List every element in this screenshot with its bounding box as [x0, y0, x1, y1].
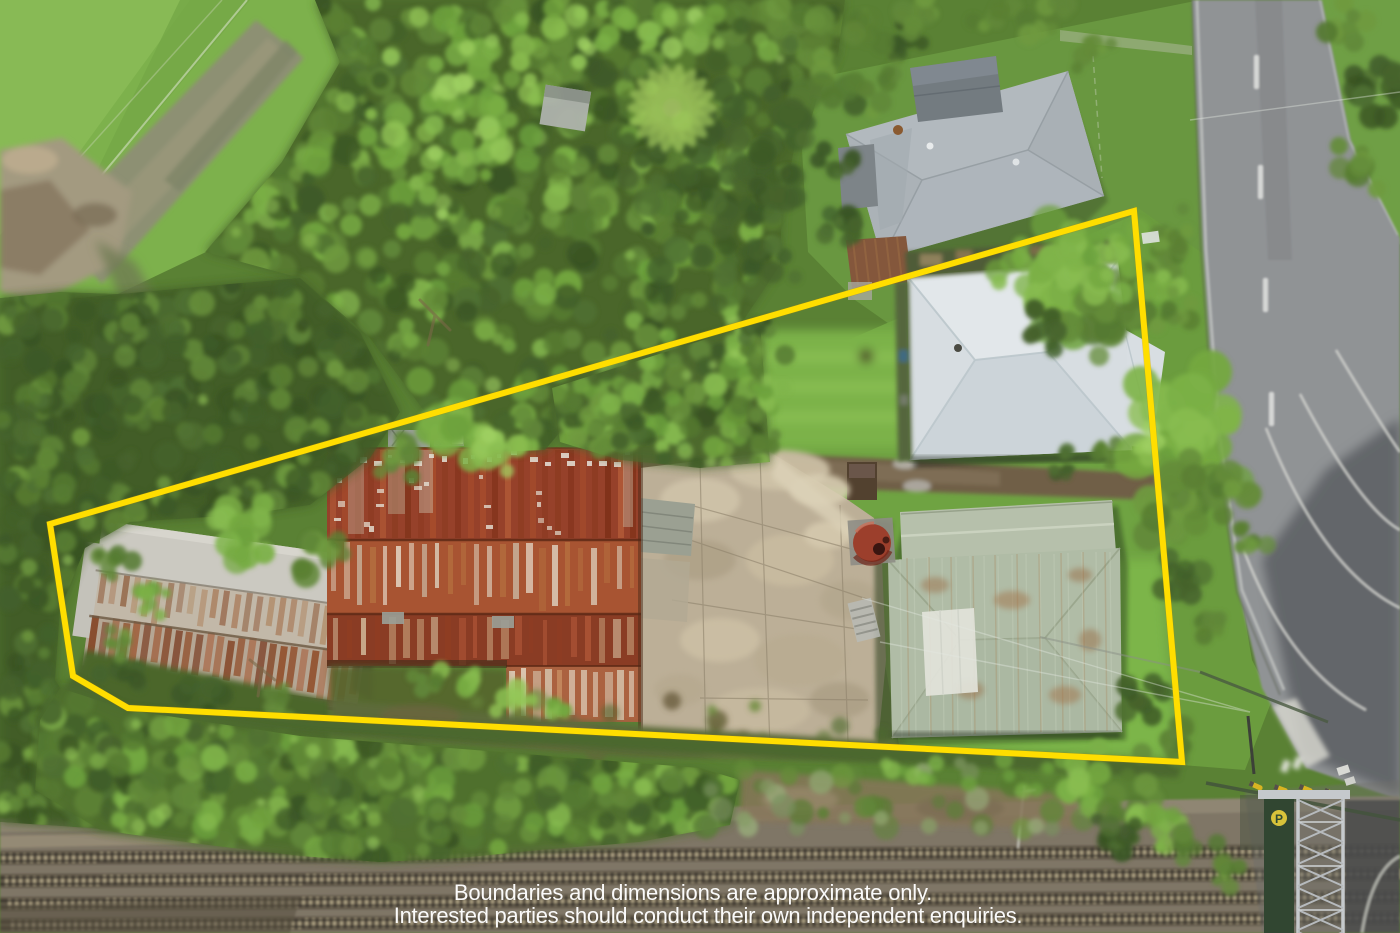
svg-text:Boundaries and dimensions are: Boundaries and dimensions are approximat… — [454, 880, 932, 905]
svg-text:P: P — [1275, 812, 1283, 826]
svg-text:Interested parties should cond: Interested parties should conduct their … — [394, 903, 1022, 928]
